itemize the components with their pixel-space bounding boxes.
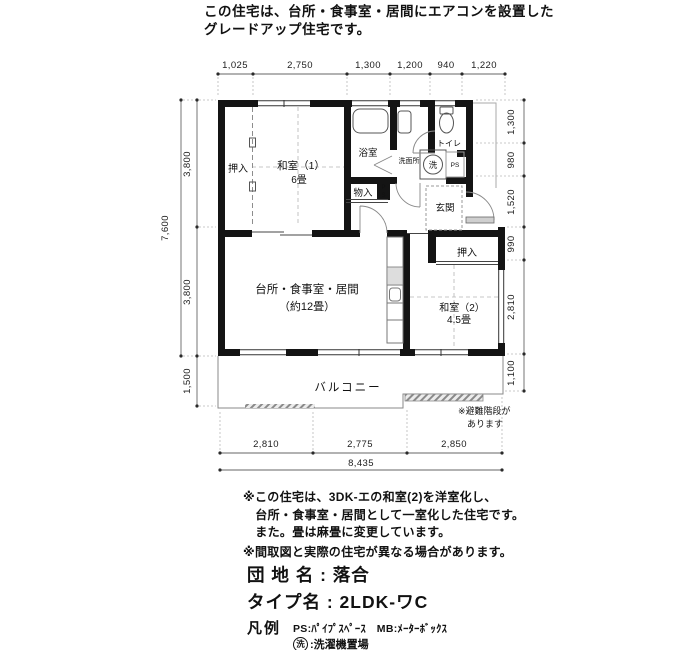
remark-line2: 台所・食事室・居間として一室化した住宅です。 bbox=[243, 507, 524, 525]
dim-right-3: 1,520 bbox=[506, 189, 517, 215]
dim-top-5: 940 bbox=[437, 60, 454, 71]
hall-ldk-door bbox=[360, 206, 387, 233]
dim-bottom-total: 8,435 bbox=[348, 458, 374, 469]
dim-left-1: 3,800 bbox=[182, 151, 193, 177]
label-washroom: 洗面所 bbox=[399, 156, 420, 165]
floor-plan-drawing: 1,025 2,750 1,300 1,200 940 1,220 7,600 … bbox=[150, 50, 550, 480]
sink bbox=[398, 111, 411, 133]
entry-alcove bbox=[473, 103, 496, 188]
label-laundry: 洗 bbox=[429, 160, 438, 170]
front-door-leaf bbox=[466, 217, 494, 223]
dim-right-1: 1,300 bbox=[506, 109, 517, 135]
label-ps1: PS bbox=[451, 162, 460, 169]
dim-right-2: 980 bbox=[506, 151, 517, 168]
label-ps2-p: P bbox=[381, 185, 385, 191]
plan-note-line2: あります bbox=[467, 419, 503, 429]
dim-top-1: 1,025 bbox=[222, 60, 248, 71]
laundry-circle-icon: 洗 bbox=[293, 637, 308, 650]
label-ps2-s: S bbox=[381, 193, 385, 199]
dim-left-2: 3,800 bbox=[182, 279, 193, 305]
balcony-railing-hatch bbox=[245, 404, 315, 408]
label-washitsu1-size: 6畳 bbox=[291, 174, 307, 186]
dim-bottom-1: 2,810 bbox=[253, 439, 279, 450]
label-toilet: トイレ bbox=[437, 139, 461, 148]
emergency-hatch-strip bbox=[405, 394, 483, 401]
dim-top-2: 2,750 bbox=[287, 60, 313, 71]
dim-top-3: 1,300 bbox=[355, 60, 381, 71]
header-line1: この住宅は、台所・食事室・居間にエアコンを設置した bbox=[204, 3, 554, 21]
remark-line1: ※この住宅は、3DK-エの和室(2)を洋室化し、 bbox=[243, 489, 524, 507]
dim-left-3: 1,500 bbox=[182, 368, 193, 394]
label-bath: 浴室 bbox=[358, 147, 377, 159]
remark-line3: また。畳は麻畳に変更しています。 bbox=[243, 524, 524, 542]
label-washitsu2: 和室（2） bbox=[439, 301, 485, 314]
dim-right-6: 1,100 bbox=[506, 360, 517, 386]
estate-name: 団 地 名 : 落合 bbox=[247, 562, 370, 587]
label-ldk: 台所・食事室・居間 bbox=[255, 282, 359, 296]
legend-laundry: 洗 :洗濯機置場 bbox=[293, 636, 369, 650]
label-washitsu1: 和室（1） bbox=[277, 159, 325, 172]
dim-bottom-3: 2,850 bbox=[441, 439, 467, 450]
washroom-door bbox=[396, 183, 420, 207]
type-name: タイプ名 : 2LDK-ワC bbox=[247, 589, 428, 614]
remark-line4: ※間取図と実際の住宅が異なる場合があります。 bbox=[243, 543, 512, 560]
dim-right-4: 990 bbox=[506, 235, 517, 252]
label-monoire: 物入 bbox=[353, 187, 373, 199]
kitchen-unit bbox=[387, 267, 403, 285]
label-genkan: 玄関 bbox=[435, 202, 454, 214]
bathtub bbox=[353, 109, 388, 133]
label-washitsu2-size: 4.5畳 bbox=[447, 314, 471, 326]
header-line2: グレードアップ住宅です。 bbox=[204, 21, 554, 39]
label-oshiire2: 押入 bbox=[457, 246, 477, 259]
legend-title: 凡例 bbox=[247, 617, 281, 638]
header-note: この住宅は、台所・食事室・居間にエアコンを設置した グレードアップ住宅です。 bbox=[204, 3, 554, 39]
remarks: ※この住宅は、3DK-エの和室(2)を洋室化し、 台所・食事室・居間として一室化… bbox=[243, 489, 524, 542]
dim-top-6: 1,220 bbox=[471, 60, 497, 71]
dim-left-total: 7,600 bbox=[160, 215, 171, 241]
laundry-legend-text: :洗濯機置場 bbox=[310, 636, 369, 650]
label-oshiire1: 押入 bbox=[228, 162, 248, 175]
toilet-bowl bbox=[440, 113, 454, 133]
plan-note-line1: ※避難階段が bbox=[458, 405, 511, 416]
dim-right-5: 2,810 bbox=[506, 294, 517, 320]
label-ldk-size: （約12畳） bbox=[279, 299, 335, 313]
label-balcony: バルコニー bbox=[314, 381, 381, 394]
floor-plan-page: この住宅は、台所・食事室・居間にエアコンを設置した グレードアップ住宅です。 bbox=[0, 0, 700, 650]
legend-items: PS:ﾊﾟｲﾌﾟｽﾍﾟｰｽ MB:ﾒｰﾀｰﾎﾞｯｸｽ bbox=[293, 621, 447, 636]
dim-top-4: 1,200 bbox=[397, 60, 423, 71]
dim-bottom-2: 2,775 bbox=[347, 439, 373, 450]
kitchen-sink bbox=[390, 288, 401, 301]
